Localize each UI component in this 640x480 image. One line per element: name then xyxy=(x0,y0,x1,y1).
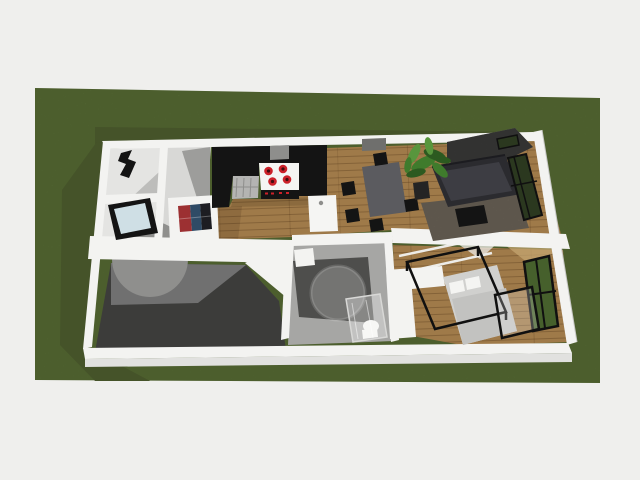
kitchen-island xyxy=(308,195,338,232)
oven-knob-4 xyxy=(286,192,289,194)
cooktop-counter xyxy=(259,163,299,190)
floorplan-3d-canvas xyxy=(0,0,640,480)
range-hood xyxy=(270,145,289,160)
dining-chair-3 xyxy=(369,218,384,232)
dining-chair-2 xyxy=(345,208,360,223)
plant-pot xyxy=(413,181,430,200)
burner-3-core xyxy=(271,180,274,183)
glass-top-table xyxy=(108,198,158,240)
dining-chair-1 xyxy=(341,181,356,196)
washbasin xyxy=(294,248,315,267)
dining-chair-4 xyxy=(373,152,388,166)
burner-4-core xyxy=(285,178,288,181)
oven-knob-1 xyxy=(265,193,268,195)
oven-knob-2 xyxy=(271,193,274,195)
burner-1-core xyxy=(267,169,270,172)
oven-knob-3 xyxy=(279,192,282,194)
render-viewport[interactable] xyxy=(0,0,640,480)
dining-table xyxy=(362,162,407,217)
entry-art-rug xyxy=(178,203,212,232)
open-glass-door xyxy=(495,287,539,338)
island-faucet xyxy=(319,201,323,205)
burner-2-core xyxy=(281,167,284,170)
sideboard xyxy=(362,138,386,151)
dining-chair-5 xyxy=(404,198,419,212)
